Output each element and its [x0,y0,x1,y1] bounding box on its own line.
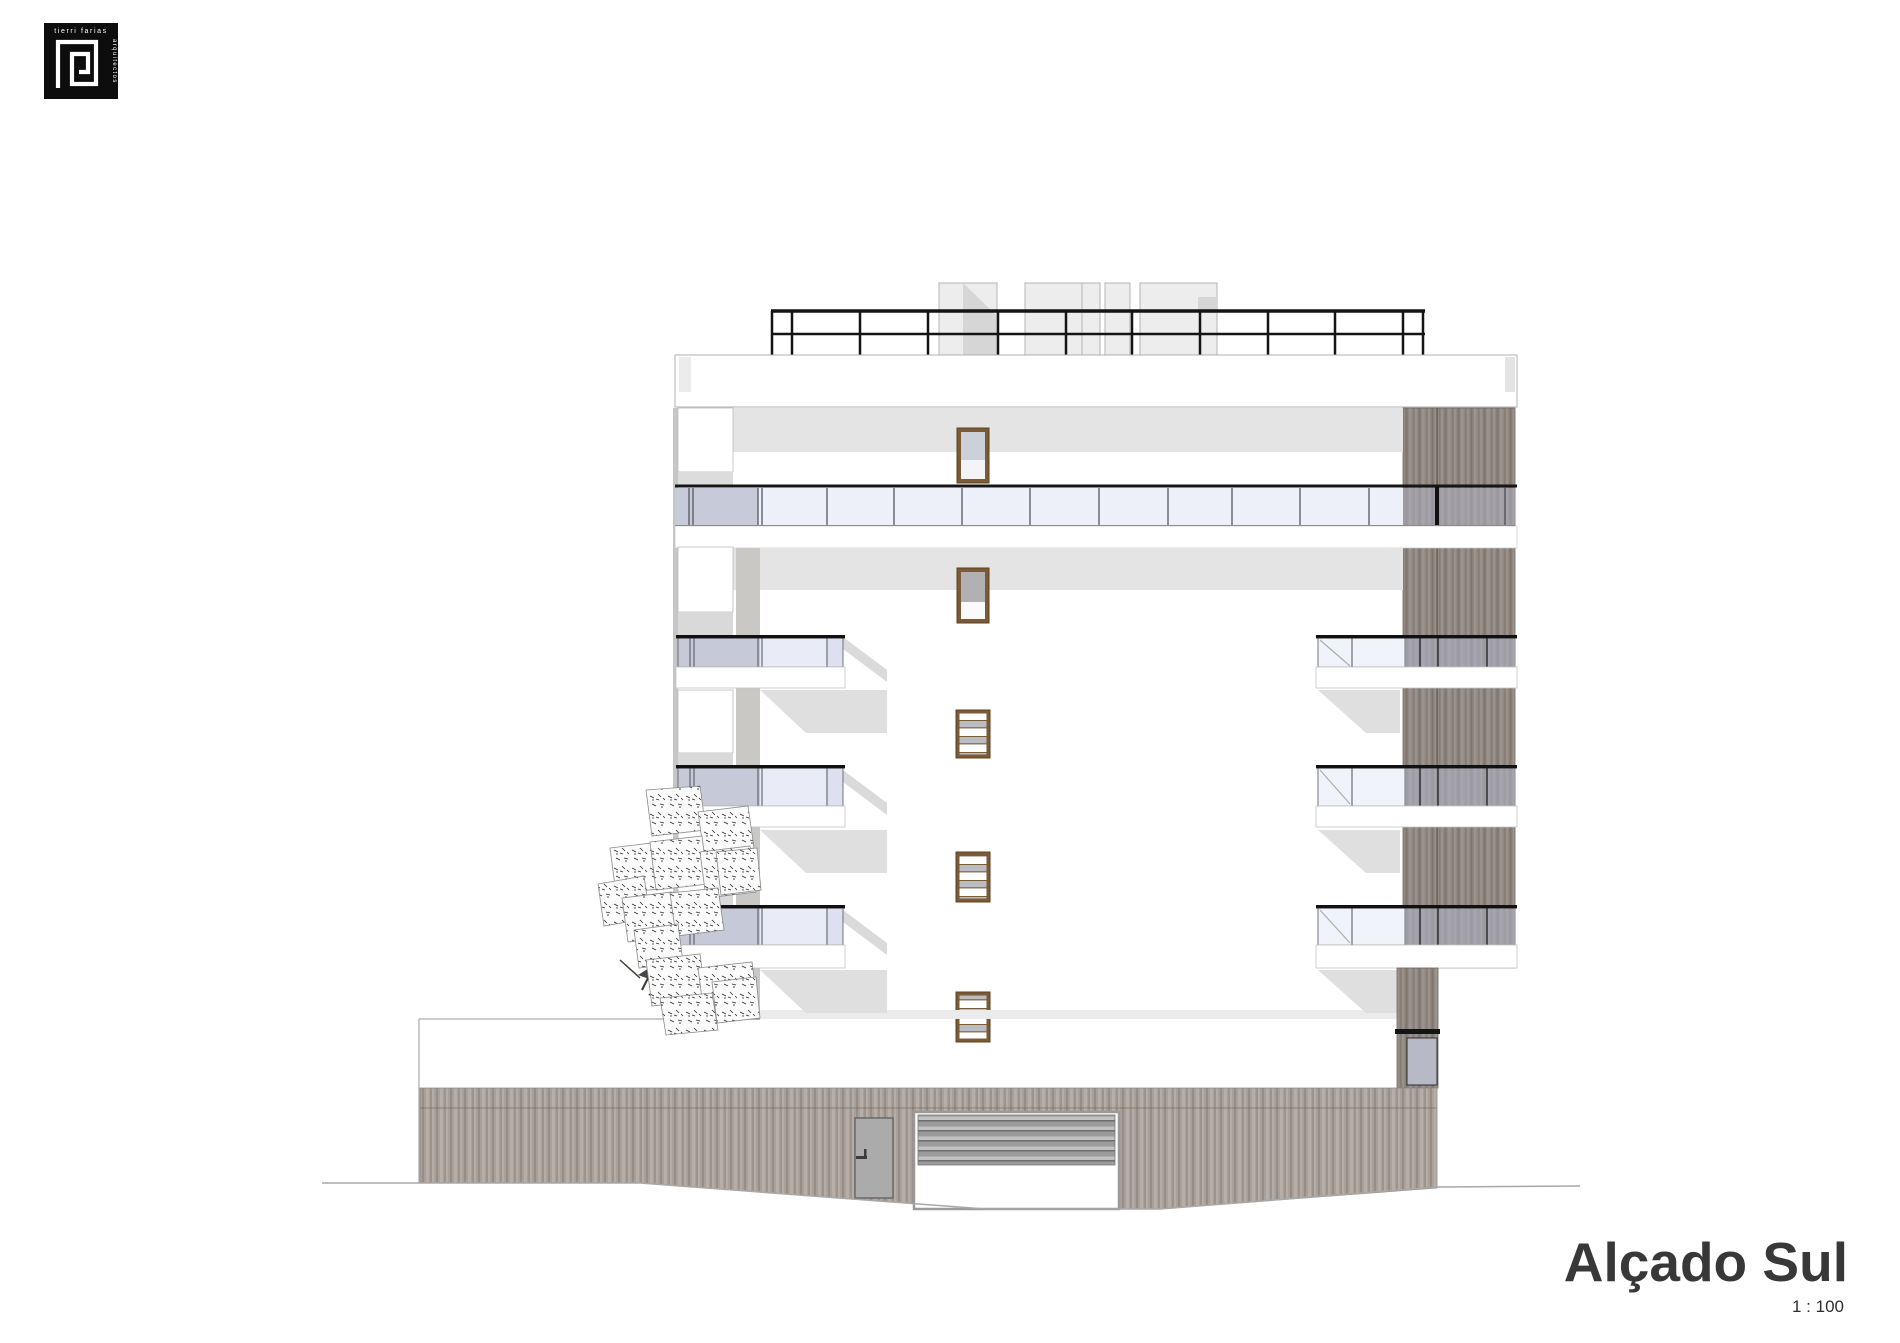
balcony3-right-rail [1316,905,1517,908]
balcony1-right-rail [1316,635,1517,638]
elevation-drawing [0,0,1900,1343]
window-center-top-glass-upper [961,432,985,460]
window-left-f2 [678,690,733,753]
window-center-mid-glass-upper [961,572,985,602]
roof-panel-1 [1082,283,1100,355]
balcony2-right-shadow [1318,830,1400,873]
balcony2-left-glass-2 [760,768,828,806]
balcony1-left-slab [676,667,845,688]
parapet-band [675,355,1517,407]
balcony1-right-glass-over-wood [1405,638,1515,667]
balcony1-left-glass-3 [828,638,843,667]
balcony2-left-shadow-a [843,770,887,815]
balcony3-right-glass [1318,908,1405,945]
window-left-f4 [678,408,733,472]
balcony3-right-slab [1316,945,1517,968]
balcony2-right-glass-over-wood [1405,768,1515,806]
balcony1-left-shadow-a [843,637,887,682]
garage-door-slats [918,1115,1115,1165]
sill-left-f4 [678,472,733,485]
window-left-f3 [678,547,733,612]
parapet-right-inset [1505,357,1515,392]
balcony2-left-shadow-b [760,830,887,873]
glazing-left-panel [675,488,758,525]
parapet-left-inset [679,357,691,392]
sill-left-f2 [678,753,733,765]
balcony2-right-slab [1316,806,1517,827]
wood-strip-black-line [1395,1029,1440,1034]
glazing-top-line [675,485,1517,488]
balcony1-left-shadow-b [760,690,887,733]
balcony1-right-slab [1316,667,1517,688]
roof-floor-slab [675,526,1517,548]
glazing-band [675,488,1403,525]
window-center-mid-glass-lower [961,602,985,619]
drawing-title: Alçado Sul [1564,1230,1848,1294]
balcony3-left-shadow-b [760,970,887,1013]
roof-box-2 [1025,283,1082,355]
balcony3-right-glass-over-wood [1405,908,1515,945]
balcony1-right-glass [1318,638,1405,667]
drawing-sheet: tierri farias arquitectos [0,0,1900,1343]
louver-vent-1-slats [960,714,987,755]
balcony1-left-rail [676,635,845,638]
balcony1-left-glass-2 [760,638,828,667]
balcony3-left-glass-3 [828,908,843,945]
tree-foliage-1 [646,786,706,836]
balcony2-left-rail [676,765,845,768]
wood-strip-glass-panel [1407,1038,1437,1085]
roof-panel-2 [1105,283,1130,355]
tree-foliage-14 [712,977,760,1023]
balcony3-left-glass-2 [760,908,828,945]
tree-branch-3 [620,960,640,978]
ground-shadow-band [675,1010,1437,1019]
tree-foliage-5 [650,836,708,890]
tree-foliage-13 [660,993,718,1035]
tree-foliage-9 [716,848,761,895]
setback-gray-band [673,408,1403,452]
balcony1-right-shadow [1318,690,1400,733]
window-center-top-glass-lower [961,460,985,479]
balcony3-right-shadow [1318,970,1400,1013]
entry-door-handle-stem [864,1149,867,1159]
drawing-scale-label: 1 : 100 [1792,1297,1844,1317]
balcony2-left-glass-3 [828,768,843,806]
balcony2-right-glass [1318,768,1405,806]
sill-left-f3 [678,612,733,635]
glazing-over-wood [1403,488,1515,525]
balcony2-right-rail [1316,765,1517,768]
stripe-floor4 [733,548,1403,590]
roof-box-3 [1140,283,1217,355]
louver-vent-2-slats [960,856,987,899]
balcony3-left-shadow-a [843,910,887,955]
